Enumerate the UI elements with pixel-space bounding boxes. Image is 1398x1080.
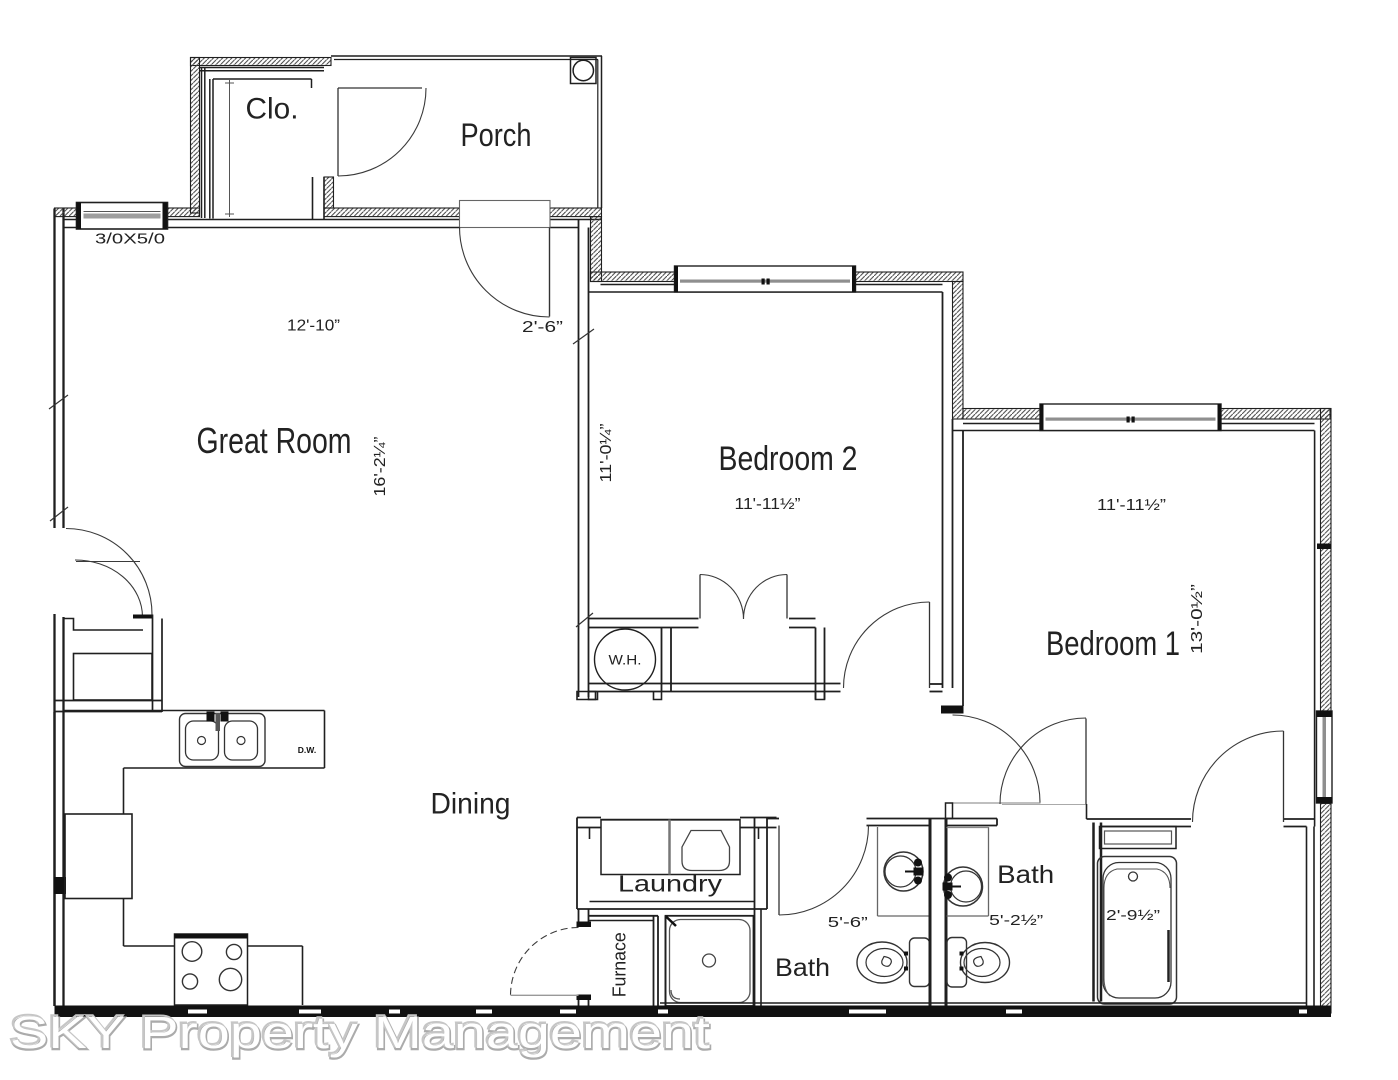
svg-text:5'-2½”: 5'-2½” (989, 912, 1043, 929)
svg-text:SKY Property Management: SKY Property Management (10, 1007, 711, 1058)
svg-text:W.H.: W.H. (609, 652, 642, 668)
svg-text:Porch: Porch (461, 117, 532, 153)
svg-text:Bath: Bath (997, 861, 1054, 889)
svg-text:2'-9½”: 2'-9½” (1106, 907, 1160, 924)
svg-text:11'-0¼”: 11'-0¼” (598, 424, 615, 483)
svg-text:Furnace: Furnace (610, 932, 630, 997)
svg-text:12'-10”: 12'-10” (287, 318, 340, 335)
svg-text:D.W.: D.W. (298, 745, 316, 755)
svg-text:3/0X5/0: 3/0X5/0 (95, 231, 165, 248)
svg-text:5'-6”: 5'-6” (828, 914, 868, 931)
svg-text:16'-2¼”: 16'-2¼” (372, 437, 389, 497)
svg-text:2'-6”: 2'-6” (522, 319, 563, 336)
svg-text:11'-11½”: 11'-11½” (735, 496, 801, 513)
svg-text:Bedroom 1: Bedroom 1 (1046, 625, 1180, 663)
svg-text:Great Room: Great Room (197, 420, 352, 461)
svg-text:Clo.: Clo. (246, 93, 299, 126)
svg-text:13'-0½”: 13'-0½” (1189, 584, 1206, 654)
svg-text:Bedroom 2: Bedroom 2 (719, 440, 858, 478)
svg-text:Bath: Bath (775, 954, 830, 982)
svg-text:Dining: Dining (431, 788, 511, 821)
svg-text:11'-11½”: 11'-11½” (1097, 497, 1166, 514)
